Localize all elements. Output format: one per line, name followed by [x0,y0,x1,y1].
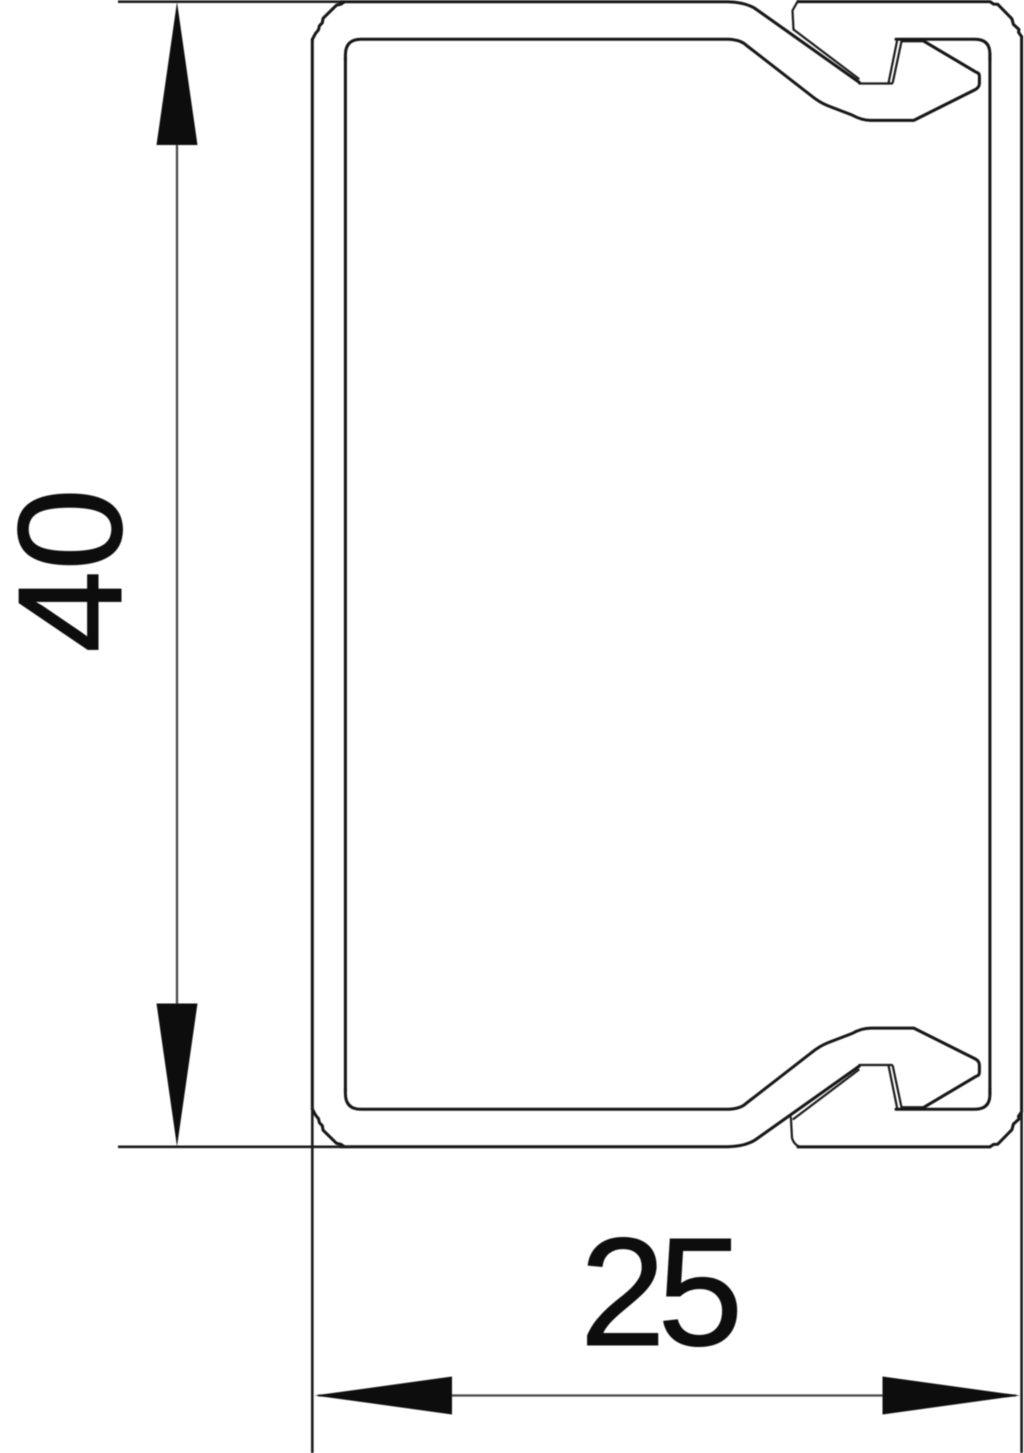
svg-text:25: 25 [580,1206,738,1378]
svg-text:40: 40 [0,488,153,653]
